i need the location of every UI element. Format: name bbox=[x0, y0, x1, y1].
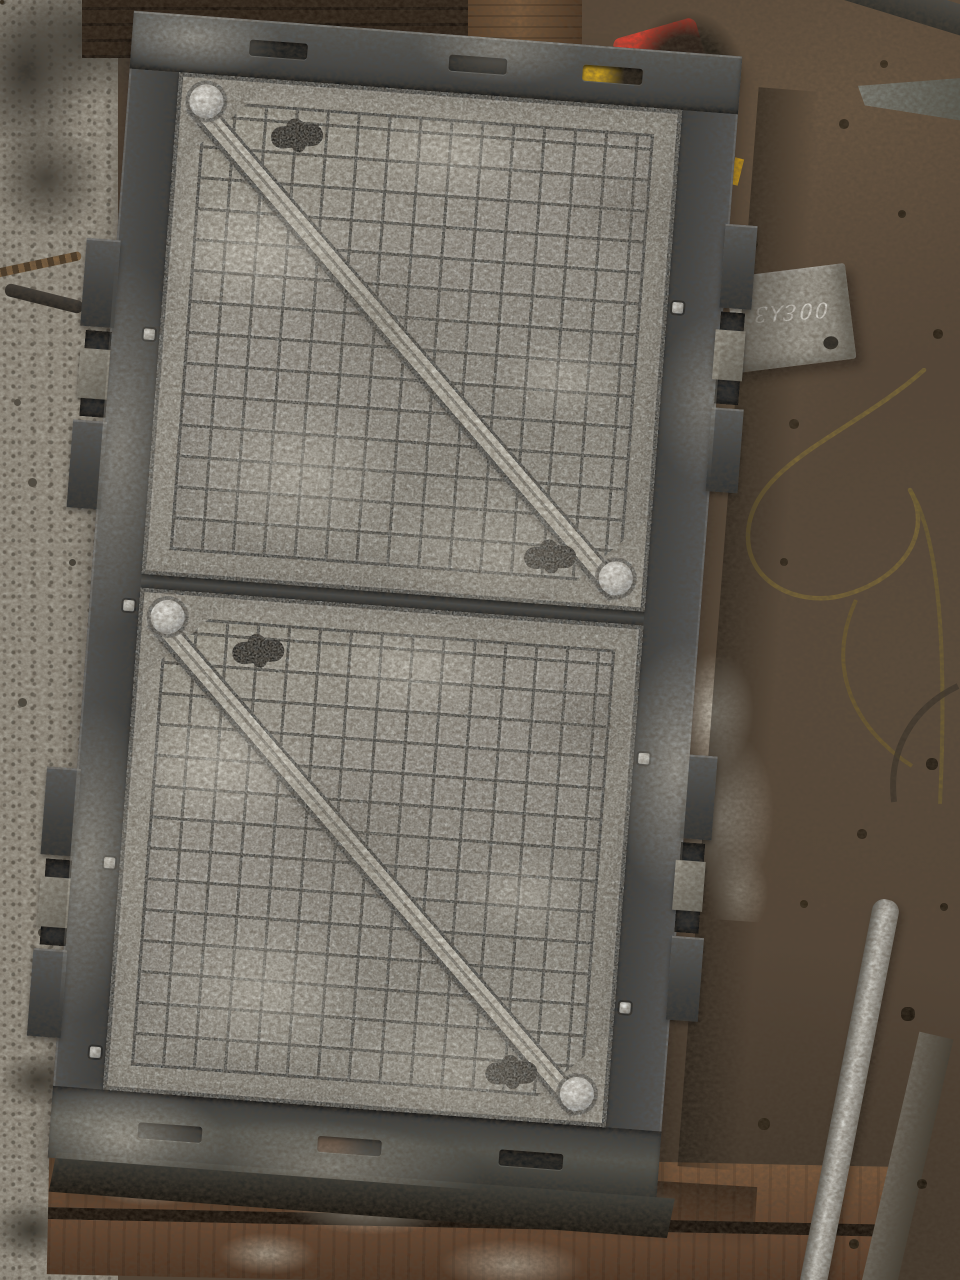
photo-scene: 00Ɛ⅄3 bbox=[0, 0, 960, 1280]
floor-debris bbox=[0, 0, 4, 4]
block-hole bbox=[823, 335, 839, 350]
frame-dust-overlay bbox=[48, 11, 743, 1204]
manhole-cover-assembly bbox=[48, 11, 743, 1204]
